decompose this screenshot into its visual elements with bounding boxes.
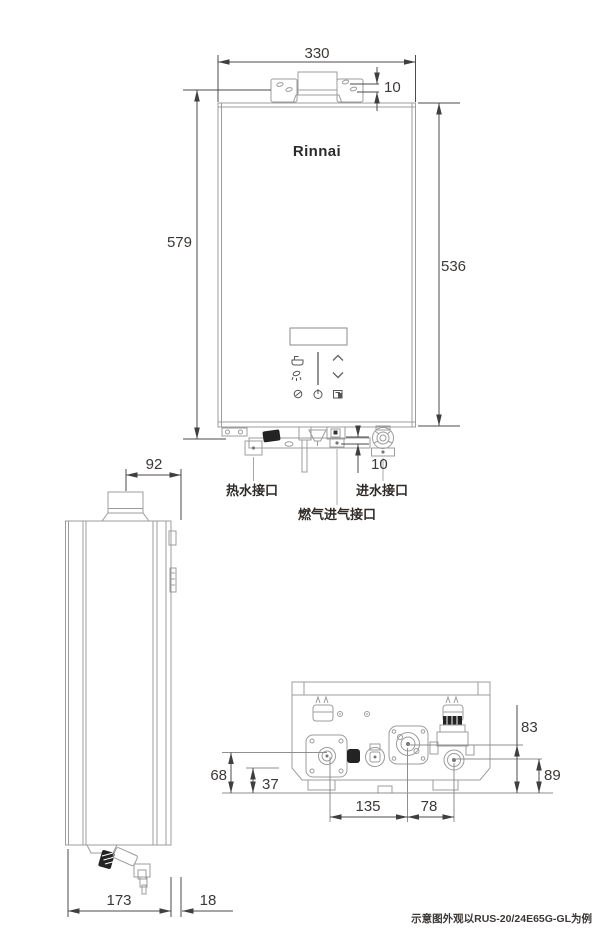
dim-bottom-gap-label: 10: [371, 457, 388, 473]
hot-water-fitting: [222, 428, 281, 455]
dim-wall-gap-label: 18: [193, 893, 223, 909]
bottom-connections: [222, 426, 395, 472]
hot-water-valve-knob: [262, 429, 280, 442]
shower-icon: [292, 370, 301, 381]
dim-depth-label: 173: [97, 893, 141, 909]
hot-water-label: 热水接口: [226, 484, 278, 498]
drain-connection-bottom: [366, 744, 385, 767]
dim-body-height-label: 536: [441, 259, 466, 275]
front-view: [183, 55, 460, 505]
power-icon: [314, 389, 322, 399]
display: [290, 328, 347, 345]
bottom-case-outline: [292, 682, 490, 793]
brand-logo: Rinnai: [287, 144, 347, 160]
dim-total-height-label: 579: [158, 235, 192, 251]
dim-flue-offset-label: 92: [139, 457, 169, 473]
front-dimensions: [183, 55, 460, 473]
wall-bracket: [271, 72, 363, 103]
water-inlet-label: 进水接口: [356, 484, 408, 498]
bath-icon: [292, 357, 303, 366]
dim-foot-height-label: 37: [262, 777, 279, 793]
down-icon: [333, 373, 343, 378]
flue-pipe: [102, 492, 149, 521]
flue-collar: [298, 72, 337, 95]
side-dimensions: [68, 469, 233, 917]
side-view: [66, 469, 234, 917]
dim-inlet-height-label: 89: [544, 768, 561, 784]
up-icon: [333, 356, 343, 361]
bottom-valve-assembly: [87, 845, 150, 894]
mode-icon: [334, 391, 343, 399]
gas-inlet-label: 燃气进气接口: [298, 508, 376, 522]
eco-icon: [294, 390, 302, 398]
dim-hot-water-height-label: 68: [199, 768, 227, 784]
dim-gas-height-label: 83: [521, 720, 538, 736]
rear-bracket: [169, 531, 176, 545]
dimensional-drawing: [0, 0, 600, 940]
water-inlet-connection-bottom: [430, 716, 474, 770]
dim-gas-to-inlet-label: 78: [408, 799, 450, 815]
bottom-mount-bracket-left: [313, 697, 333, 721]
dimensional-drawing-page: Rinnai 330 10 579 536 10 热水接口 进水接口 燃气进气接…: [0, 0, 600, 940]
hot-water-connection-bottom: [306, 735, 360, 777]
dim-width-label: 330: [295, 46, 339, 62]
drain-pipe: [299, 427, 311, 472]
water-inlet-fitting: [372, 426, 395, 456]
model-note: 示意图外观以RUS-20/24E65G-GL为例: [300, 913, 592, 925]
side-case: [66, 521, 177, 845]
dim-hot-to-gas-label: 135: [346, 799, 390, 815]
dim-bracket-gap-label: 10: [384, 80, 401, 96]
control-panel: [290, 328, 347, 399]
hot-water-knob-bottom: [347, 749, 360, 763]
